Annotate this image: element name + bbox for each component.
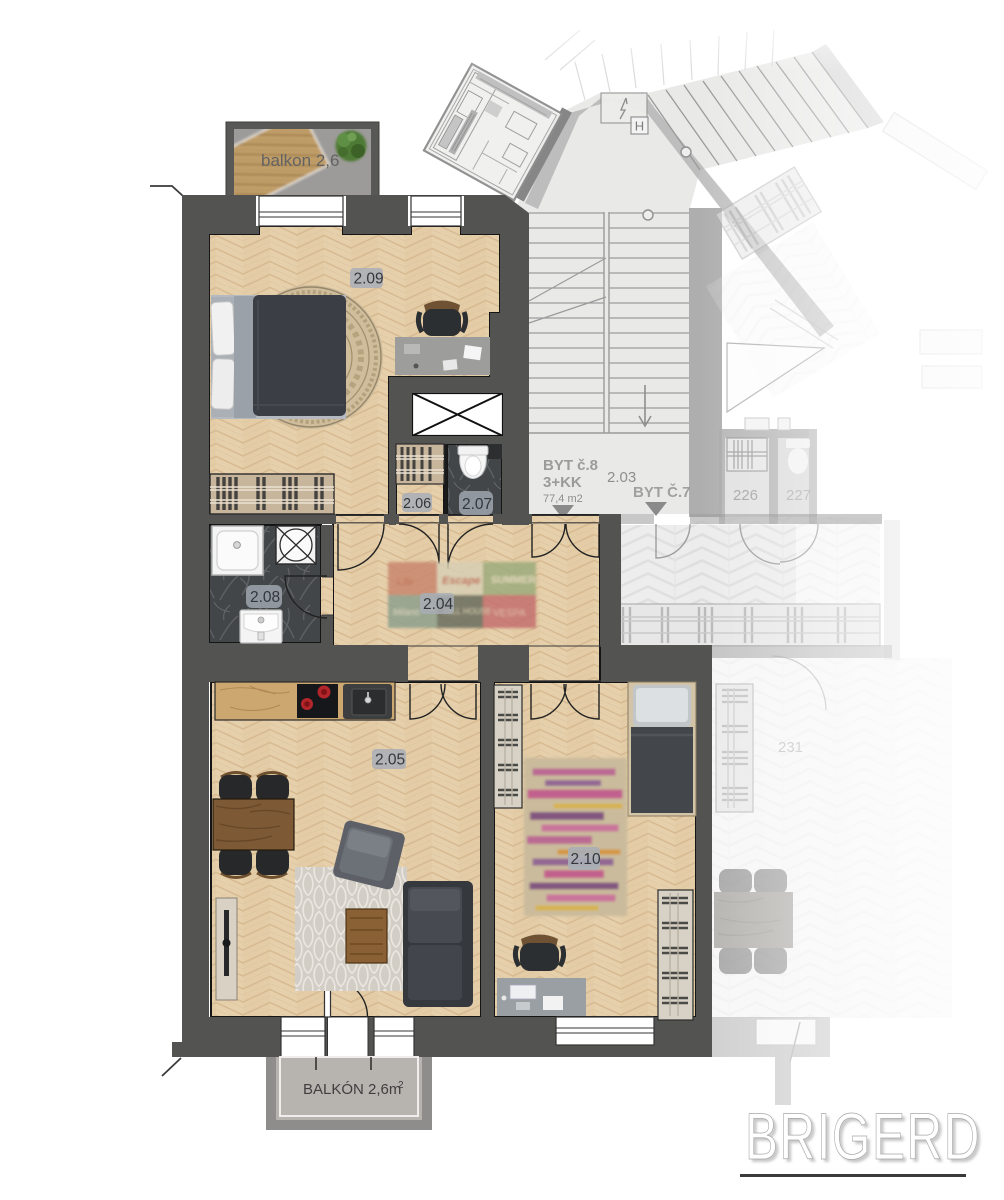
svg-text:77,4 m2: 77,4 m2 [543, 493, 583, 505]
svg-text:balkon 2,6: balkon 2,6 [261, 151, 339, 170]
svg-text:2.04: 2.04 [423, 596, 454, 613]
svg-text:2.08: 2.08 [250, 589, 280, 606]
svg-text:2.10: 2.10 [571, 851, 602, 868]
svg-text:BALKÓN 2,6m: BALKÓN 2,6m [303, 1081, 401, 1098]
svg-text:VESPA: VESPA [493, 608, 526, 619]
svg-text:BYT Č.7: BYT Č.7 [633, 483, 691, 501]
svg-text:H: H [635, 119, 644, 134]
svg-text:Milano: Milano [393, 607, 420, 617]
svg-text:Escape: Escape [442, 575, 481, 587]
svg-text:BYT č.8: BYT č.8 [543, 457, 598, 474]
svg-text:2.06: 2.06 [403, 496, 431, 512]
svg-text:2.09: 2.09 [354, 271, 384, 288]
svg-text:2.05: 2.05 [375, 752, 405, 769]
svg-text:2.03: 2.03 [607, 469, 636, 486]
svg-text:2.07: 2.07 [462, 496, 492, 513]
svg-text:2: 2 [398, 1080, 404, 1091]
svg-text:SUMMER: SUMMER [491, 575, 536, 586]
svg-text:Life: Life [397, 577, 414, 588]
svg-text:BRIGERD: BRIGERD [745, 1099, 981, 1173]
svg-text:3+KK: 3+KK [543, 474, 582, 491]
